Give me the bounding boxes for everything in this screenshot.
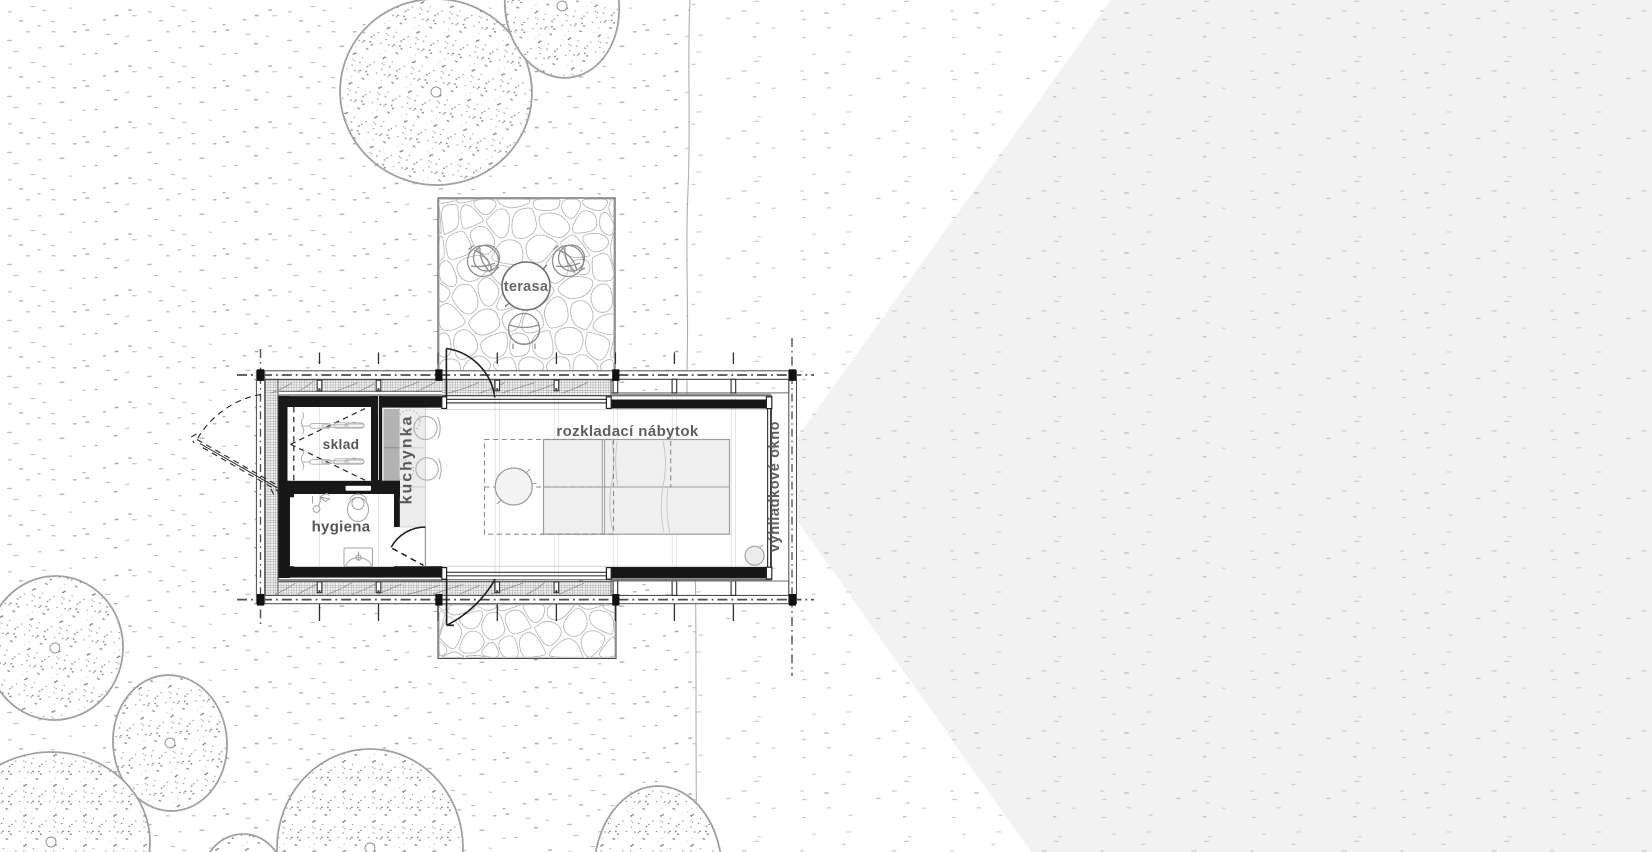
svg-text:hygiena: hygiena [312,519,371,536]
svg-text:terasa: terasa [504,279,549,295]
svg-text:výhliadkové okno: výhliadkové okno [767,421,783,552]
svg-text:sklad: sklad [323,437,360,452]
svg-text:rozkladací nábytok: rozkladací nábytok [556,423,699,440]
svg-text:kuchynka: kuchynka [399,415,416,505]
